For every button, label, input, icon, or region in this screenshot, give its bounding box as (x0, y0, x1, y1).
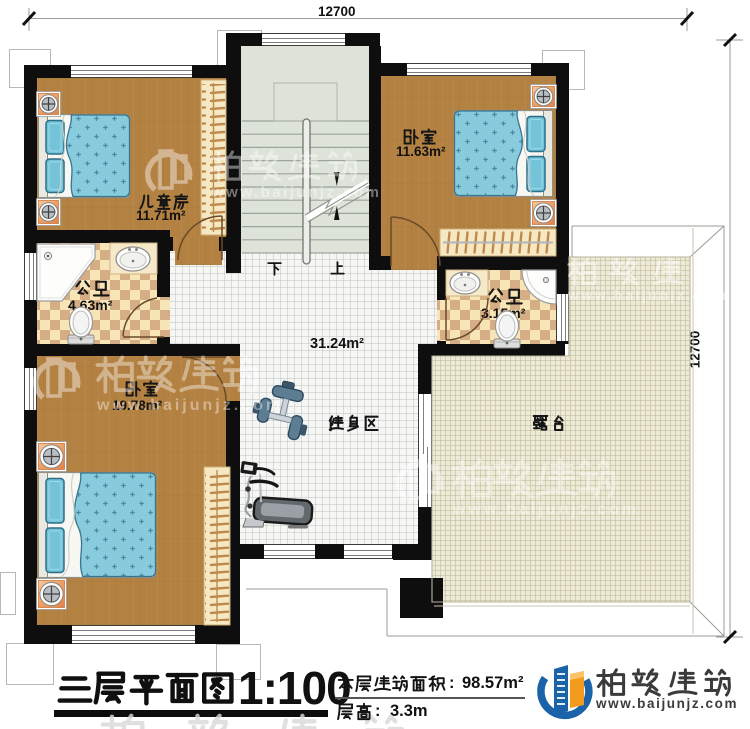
svg-text:www.baijunjz.com: www.baijunjz.com (595, 696, 738, 711)
